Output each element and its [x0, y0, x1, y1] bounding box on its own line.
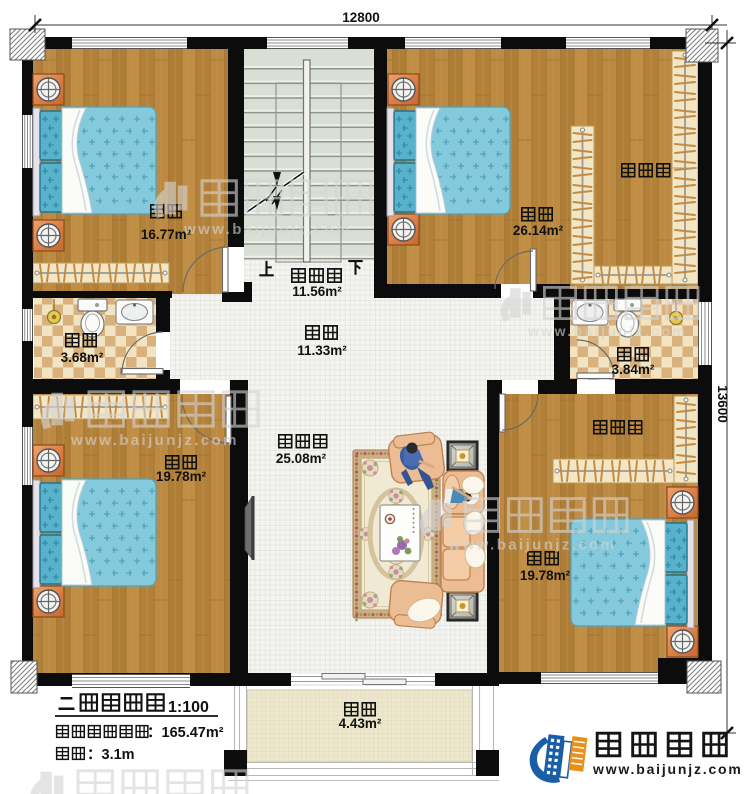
- svg-text:26.14m²: 26.14m²: [513, 223, 564, 238]
- svg-text:19.78m²: 19.78m²: [156, 469, 207, 484]
- svg-text:11.33m²: 11.33m²: [297, 343, 347, 358]
- svg-text:12800: 12800: [342, 10, 380, 25]
- svg-text:：3.1m: ：3.1m: [87, 747, 135, 763]
- svg-text:：165.47m²: ：165.47m²: [147, 725, 224, 741]
- svg-text:www.baijunjz.com: www.baijunjz.com: [592, 761, 743, 777]
- svg-text:4.43m²: 4.43m²: [339, 716, 382, 731]
- svg-text:25.08m²: 25.08m²: [276, 451, 327, 466]
- svg-text:www.baijunjz.com: www.baijunjz.com: [183, 221, 352, 238]
- svg-text:3.68m²: 3.68m²: [61, 350, 104, 365]
- svg-text:www.baijunjz.com: www.baijunjz.com: [527, 323, 687, 339]
- svg-text:19.78m²: 19.78m²: [520, 568, 571, 583]
- svg-text:1:100: 1:100: [168, 699, 209, 716]
- svg-text:13600: 13600: [715, 385, 730, 423]
- svg-text:11.56m²: 11.56m²: [292, 284, 342, 299]
- svg-text:www.baijunjz.com: www.baijunjz.com: [448, 536, 617, 553]
- svg-text:www.baijunjz.com: www.baijunjz.com: [70, 432, 239, 449]
- svg-text:3.84m²: 3.84m²: [612, 362, 655, 377]
